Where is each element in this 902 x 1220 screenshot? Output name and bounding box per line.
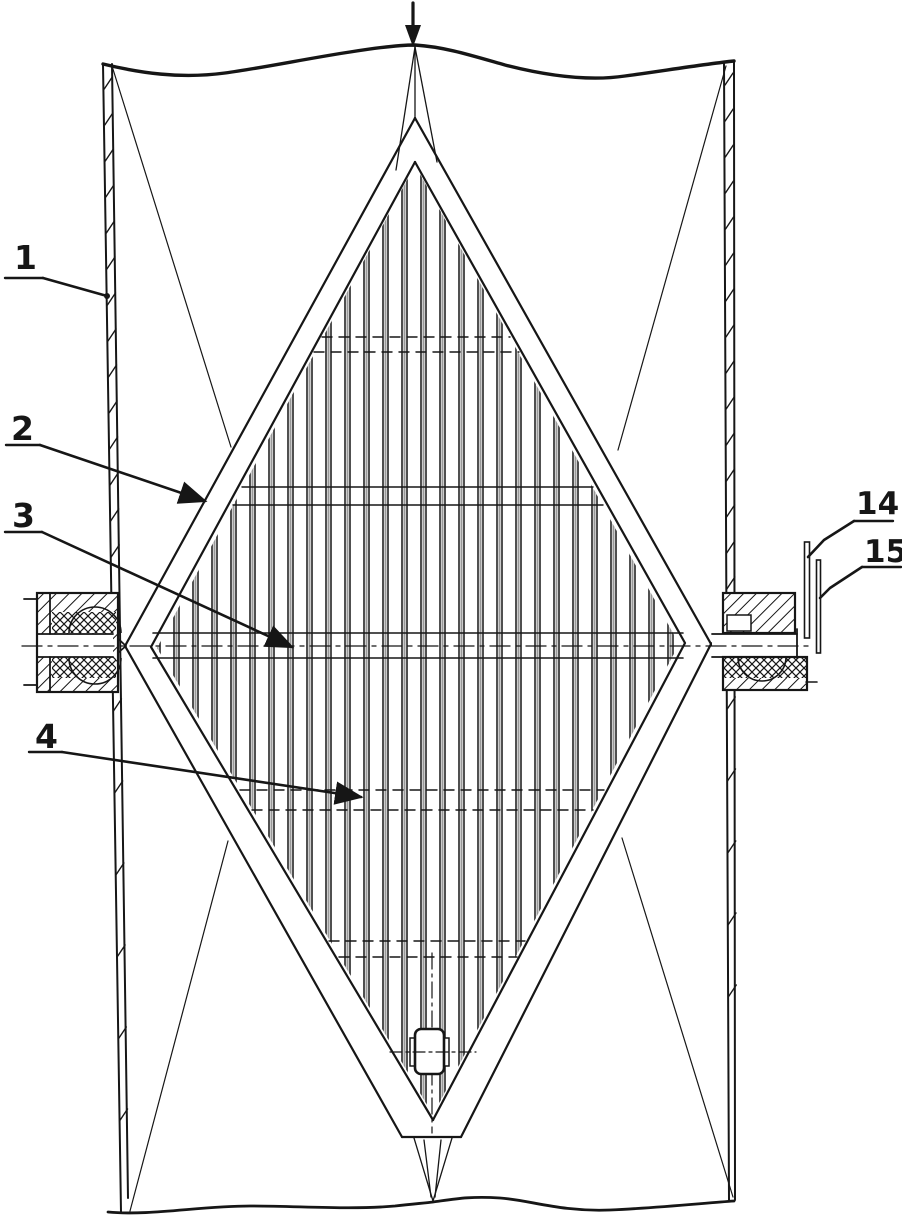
part-number-4: 4 [35, 717, 58, 756]
part-number-3: 3 [12, 496, 35, 535]
flow-arrow [405, 3, 421, 47]
right-bearing [712, 593, 817, 690]
part-label-1: 1 [5, 238, 110, 299]
part-number-14: 14 [856, 486, 899, 522]
patent-figure-page: 12341415 [0, 0, 902, 1220]
leader-line-14 [808, 521, 854, 557]
left-bearing [24, 593, 121, 692]
part-number-2: 2 [11, 409, 34, 448]
top-break-line [103, 45, 734, 78]
part-number-1: 1 [14, 238, 37, 277]
bottom-break-line [108, 1197, 734, 1213]
part-label-15: 15 [820, 534, 902, 598]
leader-line-15 [820, 567, 862, 598]
part-number-15: 15 [864, 534, 902, 570]
leader-line-1 [43, 278, 107, 296]
damper-blades [155, 100, 692, 1160]
part-label-2: 2 [6, 409, 205, 501]
leader-line-2 [40, 445, 205, 501]
counterweight-block [390, 1029, 476, 1074]
indicator-plate-15 [817, 560, 821, 653]
technical-drawing-canvas: 12341415 [0, 0, 902, 1220]
part-label-4: 4 [29, 717, 361, 797]
leader-line-4 [62, 752, 361, 797]
damper-figure-svg: 12341415 [0, 0, 902, 1220]
